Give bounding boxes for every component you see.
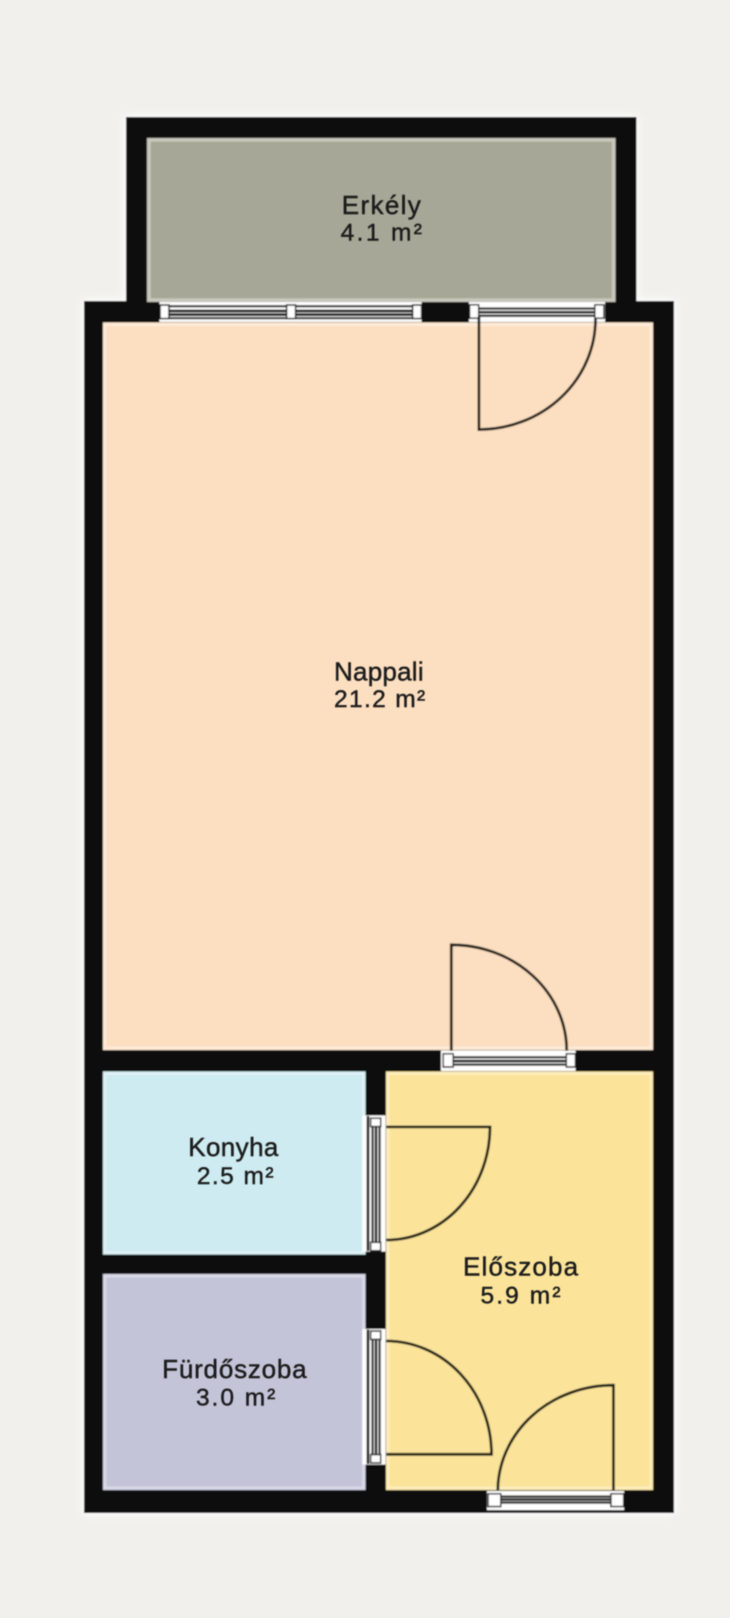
svg-text:Fürdőszoba: Fürdőszoba <box>162 1354 307 1384</box>
svg-text:Konyha: Konyha <box>188 1132 279 1162</box>
svg-text:2.5 m²: 2.5 m² <box>197 1163 274 1190</box>
svg-text:Előszoba: Előszoba <box>463 1252 579 1282</box>
svg-text:3.0 m²: 3.0 m² <box>196 1385 275 1412</box>
svg-text:5.9 m²: 5.9 m² <box>481 1282 561 1309</box>
svg-text:4.1 m²: 4.1 m² <box>341 220 422 247</box>
svg-text:Nappali: Nappali <box>334 657 424 687</box>
svg-text:Erkély: Erkély <box>342 190 421 220</box>
